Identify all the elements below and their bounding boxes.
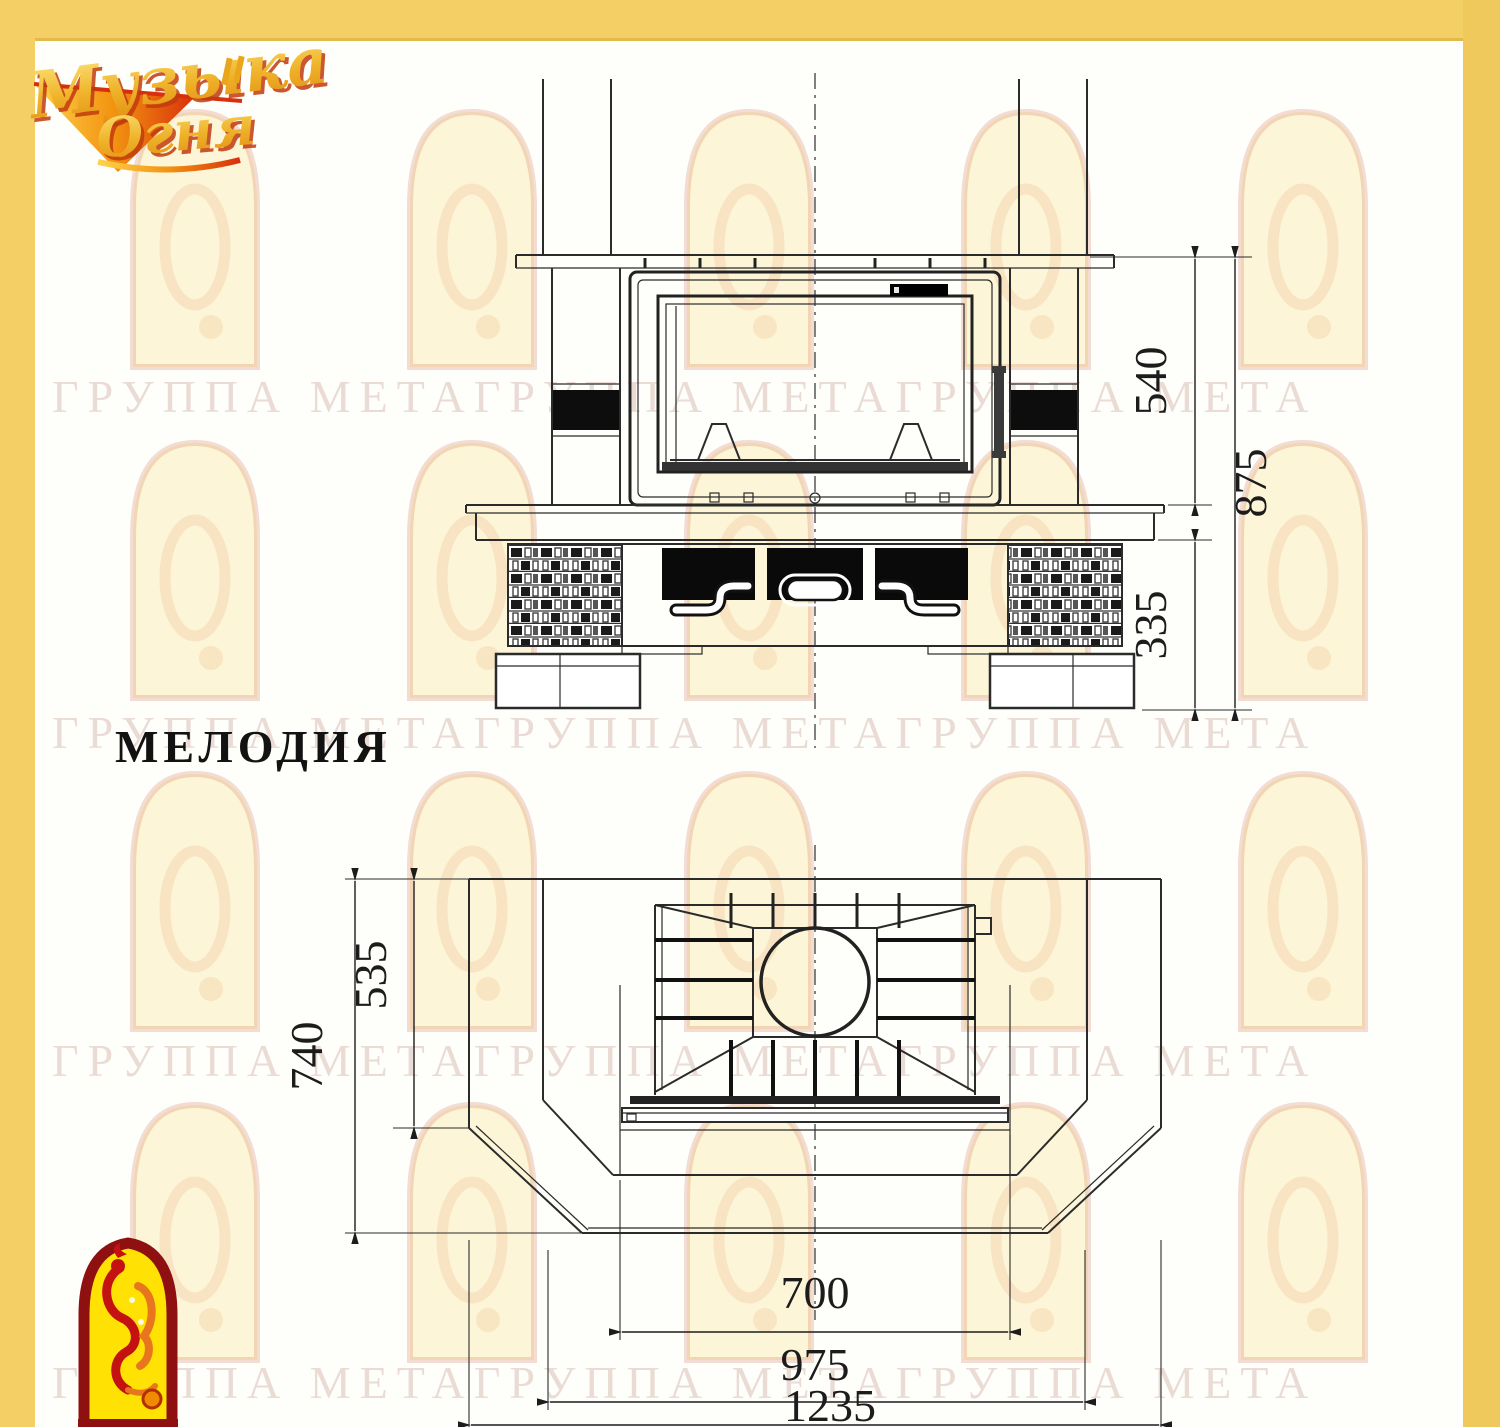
border-left	[0, 0, 35, 1427]
front-dim-335-label: 335	[1125, 591, 1176, 660]
emblem-base-bar	[78, 1419, 178, 1427]
left-black-band	[553, 390, 619, 430]
door-handle	[994, 370, 1004, 454]
watermark-text: ГРУППА МЕТАГРУППА МЕТАГРУППА МЕТА	[52, 1035, 1317, 1086]
right-black-band	[1011, 390, 1077, 430]
insert-front-rail	[622, 1108, 1008, 1122]
door-sill	[662, 462, 968, 471]
page: ГРУППА МЕТАГРУППА МЕТАГРУППА МЕТА ГРУППА…	[0, 0, 1500, 1427]
insert-front-grate	[630, 1096, 1000, 1104]
log-guard-right	[890, 424, 932, 460]
front-dim-540-label: 540	[1125, 347, 1176, 416]
brick-pillar-right	[1008, 544, 1122, 646]
plinth-right	[990, 654, 1134, 708]
brick-pillar-left	[508, 544, 622, 646]
plinth-left	[496, 654, 640, 708]
firebird-emblem	[78, 1243, 178, 1427]
pill-grill	[787, 580, 843, 600]
model-name: МЕЛОДИЯ	[115, 721, 392, 772]
base	[496, 544, 1134, 708]
border-right	[1463, 0, 1500, 1427]
technical-drawing: ГРУППА МЕТАГРУППА МЕТАГРУППА МЕТА ГРУППА…	[0, 0, 1500, 1427]
firebird-head	[111, 1259, 125, 1273]
border-top	[0, 0, 1500, 40]
firebird-sun-dot	[143, 1390, 161, 1408]
plan-dim-1235-label: 1235	[784, 1380, 876, 1427]
watermark-text: ГРУППА МЕТАГРУППА МЕТАГРУППА МЕТА	[52, 1357, 1317, 1408]
plan-dim-700-label: 700	[781, 1267, 850, 1318]
brand-plate-mark	[894, 287, 899, 293]
plan-dim-535-label: 535	[345, 941, 396, 1010]
plan-dim-740-label: 740	[281, 1022, 332, 1091]
front-dim-875-label: 875	[1225, 449, 1276, 518]
brand-logo: Музыка Музыка Огня Огня	[23, 23, 335, 175]
